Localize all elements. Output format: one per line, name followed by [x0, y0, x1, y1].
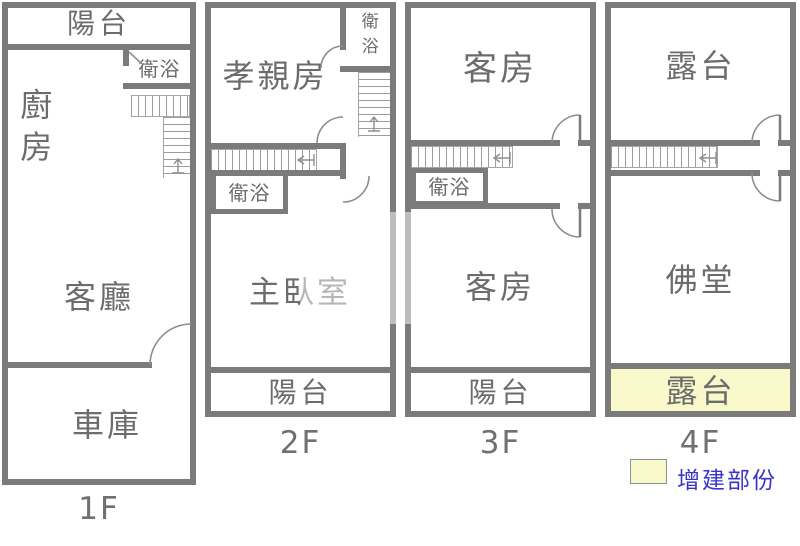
floor-label-3f: 3F [405, 426, 596, 460]
room-label-balcony-2f: 陽台 [205, 378, 396, 409]
room-label-bathroom-3f: 衛浴 [429, 176, 471, 198]
stairs-band-3f [411, 146, 513, 168]
wall-garage-divider-1f [2, 362, 152, 368]
room-label-bathroom-top-2f: 衛浴 [358, 12, 377, 62]
wall-bath-top-left-2f [340, 8, 346, 50]
floor-plan-stage: 陽台 衛浴 廚房 客廳 車庫 1F 衛浴 孝親房 衛浴 主臥室 陽台 2F [0, 0, 800, 546]
room-label-garage-1f: 車庫 [37, 408, 177, 443]
room-label-master-bedroom-2f: 主臥室 [220, 276, 380, 310]
stairs-top-run-2f [358, 72, 390, 137]
stairs-band-4f [611, 146, 718, 168]
wall-door-stub-top-4f [778, 140, 790, 146]
floor-label-4f: 4F [605, 426, 796, 460]
wall-stair-bottom-3f [405, 203, 560, 209]
legend-swatch [630, 459, 667, 484]
legend-label: 增建部份 [677, 461, 777, 495]
room-label-kitchen-1f: 廚房 [16, 88, 51, 172]
room-label-terrace-bottom-4f: 露台 [611, 374, 790, 409]
room-label-balcony-3f: 陽台 [405, 378, 596, 409]
floor-label-2f: 2F [205, 426, 396, 460]
wall-door-stub-top-3f [578, 140, 590, 146]
wall-bath-bottom-1f [123, 83, 190, 89]
wall-stair-bottom-4f [605, 170, 760, 176]
room-label-guest-room-3f: 客房 [420, 270, 580, 305]
wall-balcony-3f [405, 367, 596, 373]
bathroom-box-3f: 衛浴 [411, 168, 488, 206]
wall-balcony-2f [205, 367, 396, 373]
room-label-terrace-top-4f: 露台 [612, 49, 789, 84]
room-label-buddhist-hall-4f: 佛堂 [612, 263, 789, 298]
bathroom-box-2f: 衛浴 [211, 176, 288, 214]
room-label-bathroom-1f: 衛浴 [129, 58, 190, 80]
room-label-bathroom-2f: 衛浴 [229, 182, 271, 204]
room-label-guest-room-top-3f: 客房 [420, 51, 580, 88]
stairs-band-2f [211, 149, 317, 171]
floor-label-1f: 1F [2, 492, 196, 526]
wall-door-stub-bottom-4f [778, 170, 790, 176]
room-label-living-room-1f: 客廳 [29, 280, 169, 315]
room-label-balcony-1f: 陽台 [2, 9, 196, 40]
room-label-parents-room-2f: 孝親房 [205, 59, 345, 94]
stairs-upper-run-1f [131, 95, 190, 117]
wall-balcony-1f [2, 44, 196, 50]
wall-door-stub-bottom-3f [578, 203, 590, 209]
stairs-lower-run-1f [163, 117, 190, 178]
